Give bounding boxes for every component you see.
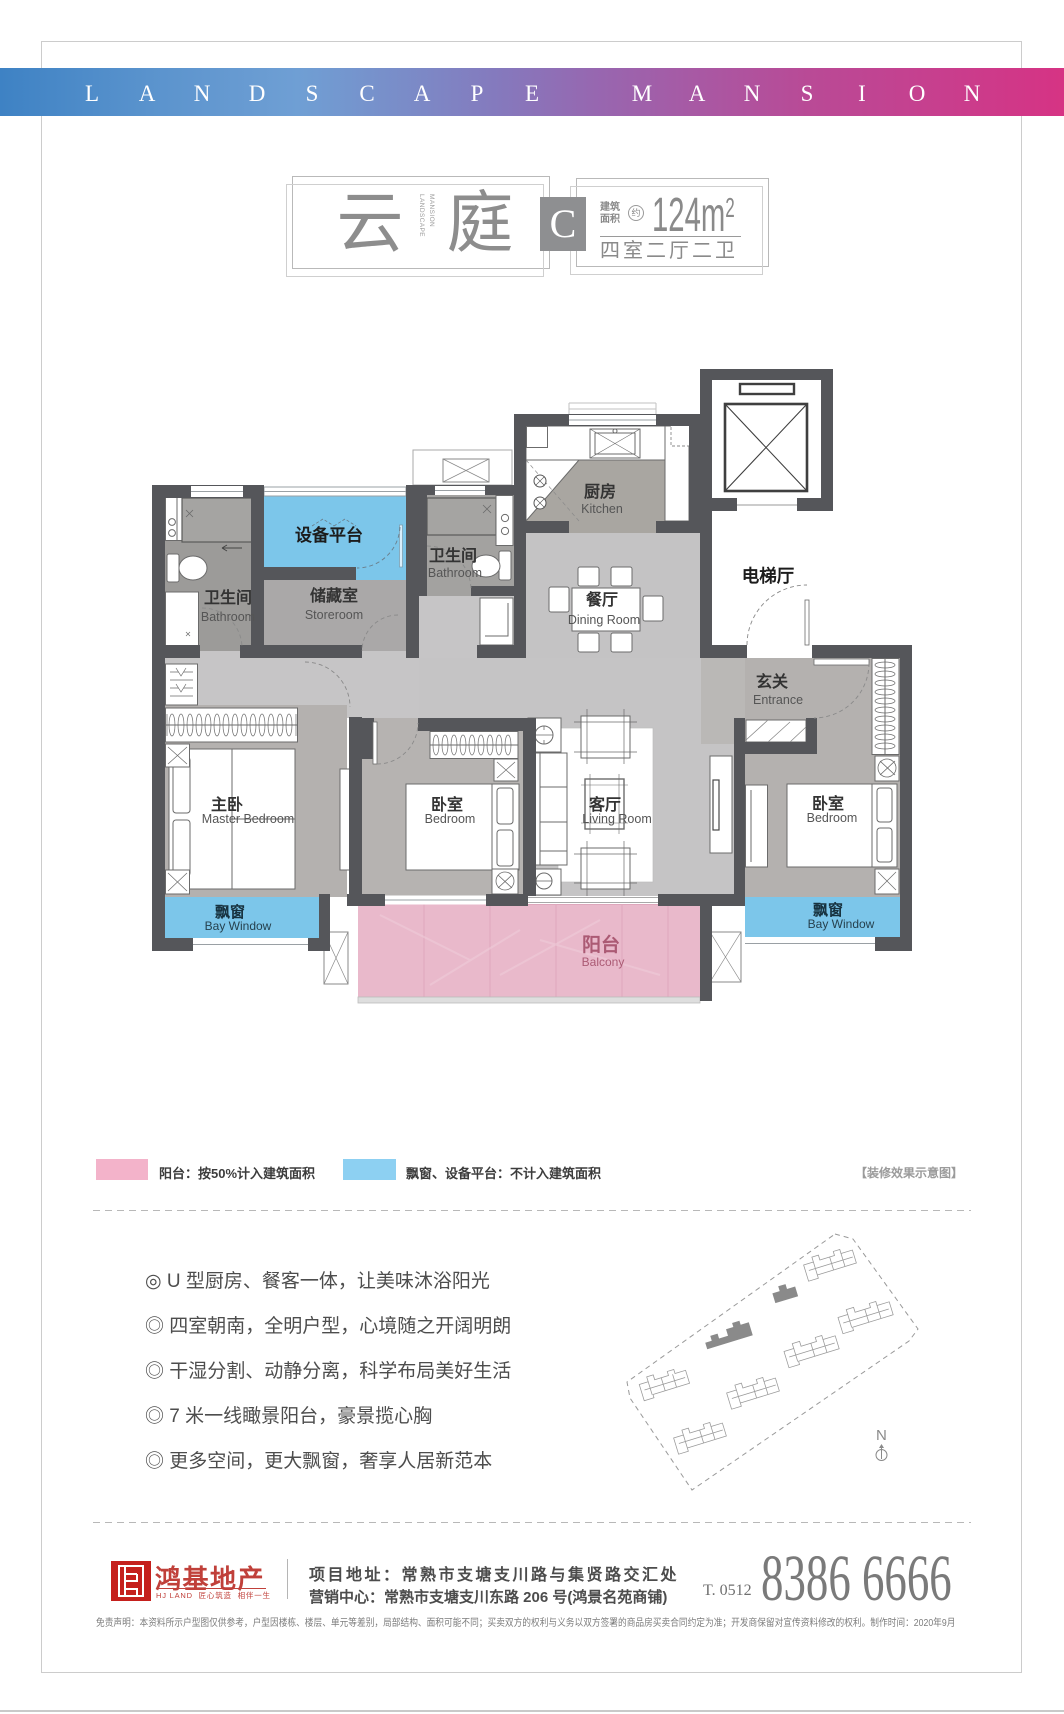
svg-text:餐厅: 餐厅 xyxy=(585,590,618,609)
svg-text:设备平台: 设备平台 xyxy=(295,525,363,545)
svg-text:卫生间: 卫生间 xyxy=(204,588,252,607)
svg-text:Balcony: Balcony xyxy=(582,955,625,969)
svg-text:Dining Room: Dining Room xyxy=(568,613,640,627)
svg-text:电梯厅: 电梯厅 xyxy=(742,566,795,586)
svg-text:Storeroom: Storeroom xyxy=(305,608,363,622)
svg-text:厨房: 厨房 xyxy=(584,482,616,501)
svg-text:阳台: 阳台 xyxy=(582,933,620,956)
svg-text:Bay Window: Bay Window xyxy=(808,917,875,931)
svg-text:玄关: 玄关 xyxy=(756,672,788,691)
svg-text:Kitchen: Kitchen xyxy=(581,502,623,516)
svg-text:N: N xyxy=(876,1427,887,1444)
svg-text:Bathroom: Bathroom xyxy=(428,566,482,580)
svg-text:Bathroom: Bathroom xyxy=(201,610,255,624)
svg-text:Bedroom: Bedroom xyxy=(807,811,858,825)
svg-text:储藏室: 储藏室 xyxy=(309,586,358,605)
svg-text:Entrance: Entrance xyxy=(753,693,803,707)
svg-text:Master Bedroom: Master Bedroom xyxy=(202,812,294,826)
svg-text:Bedroom: Bedroom xyxy=(425,812,476,826)
svg-text:Bay Window: Bay Window xyxy=(205,919,272,933)
svg-text:卫生间: 卫生间 xyxy=(429,546,477,565)
svg-text:Living Room: Living Room xyxy=(582,812,651,826)
